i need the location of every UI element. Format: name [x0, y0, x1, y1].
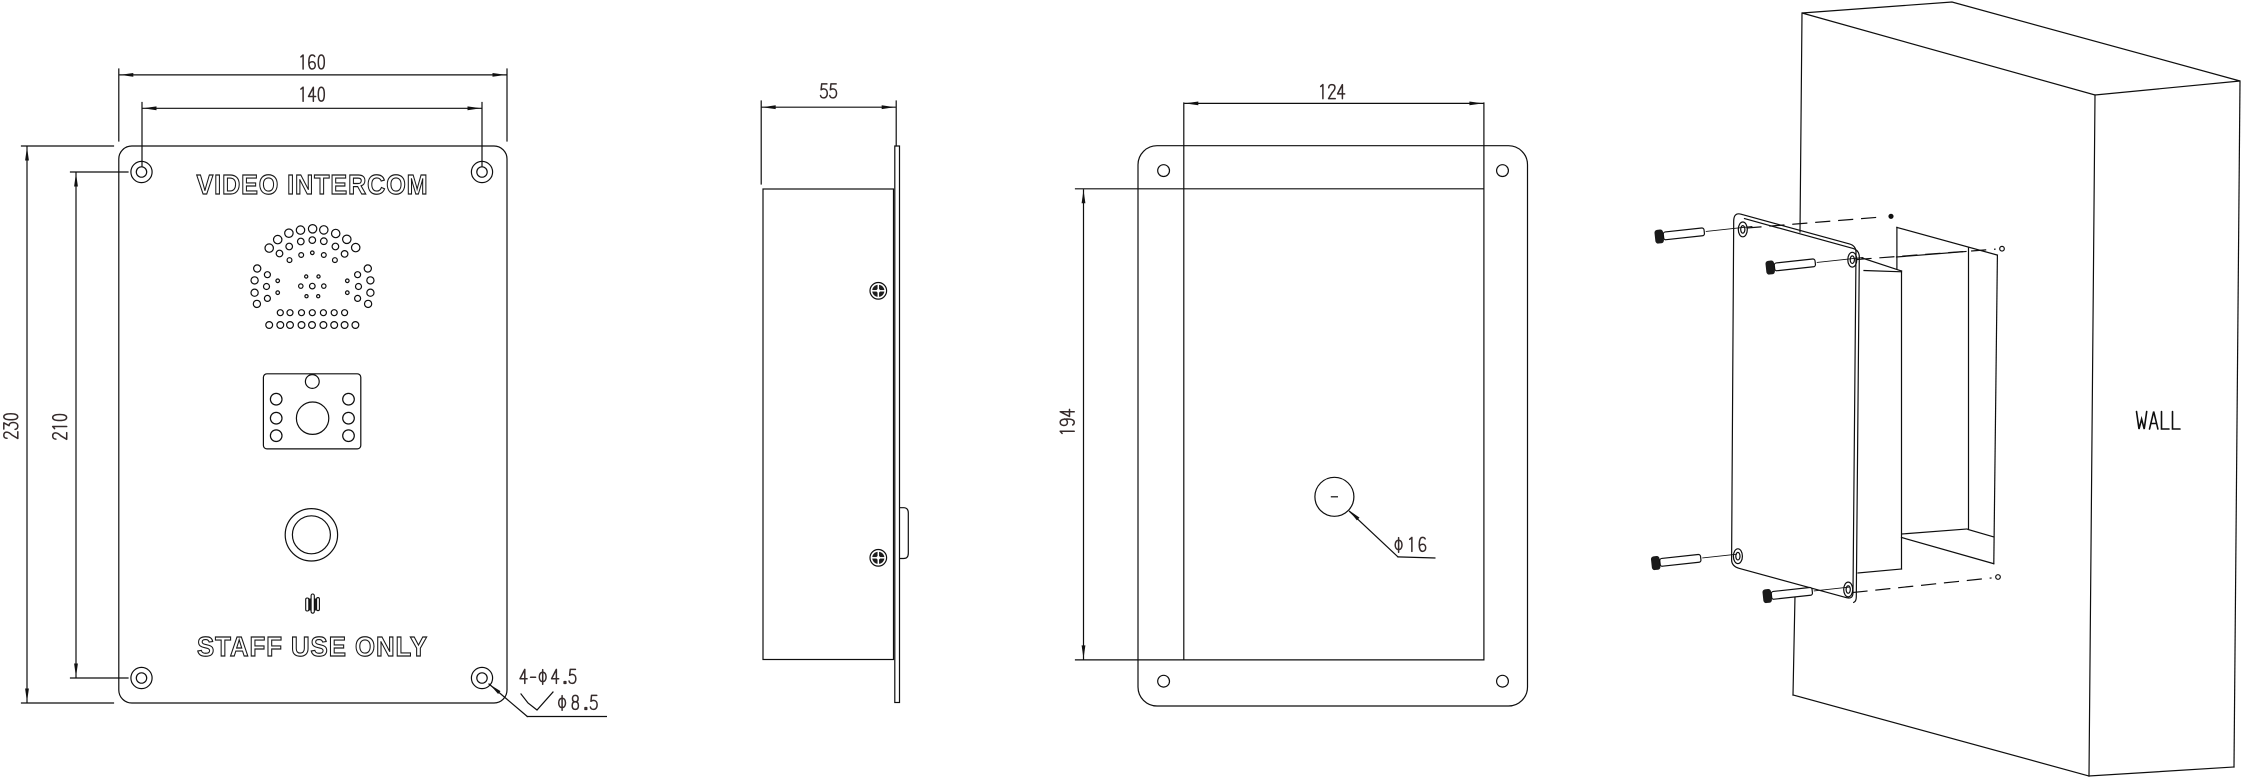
svg-text:VIDEO INTERCOM: VIDEO INTERCOM — [197, 169, 429, 200]
svg-text:STAFF USE ONLY: STAFF USE ONLY — [197, 631, 428, 662]
